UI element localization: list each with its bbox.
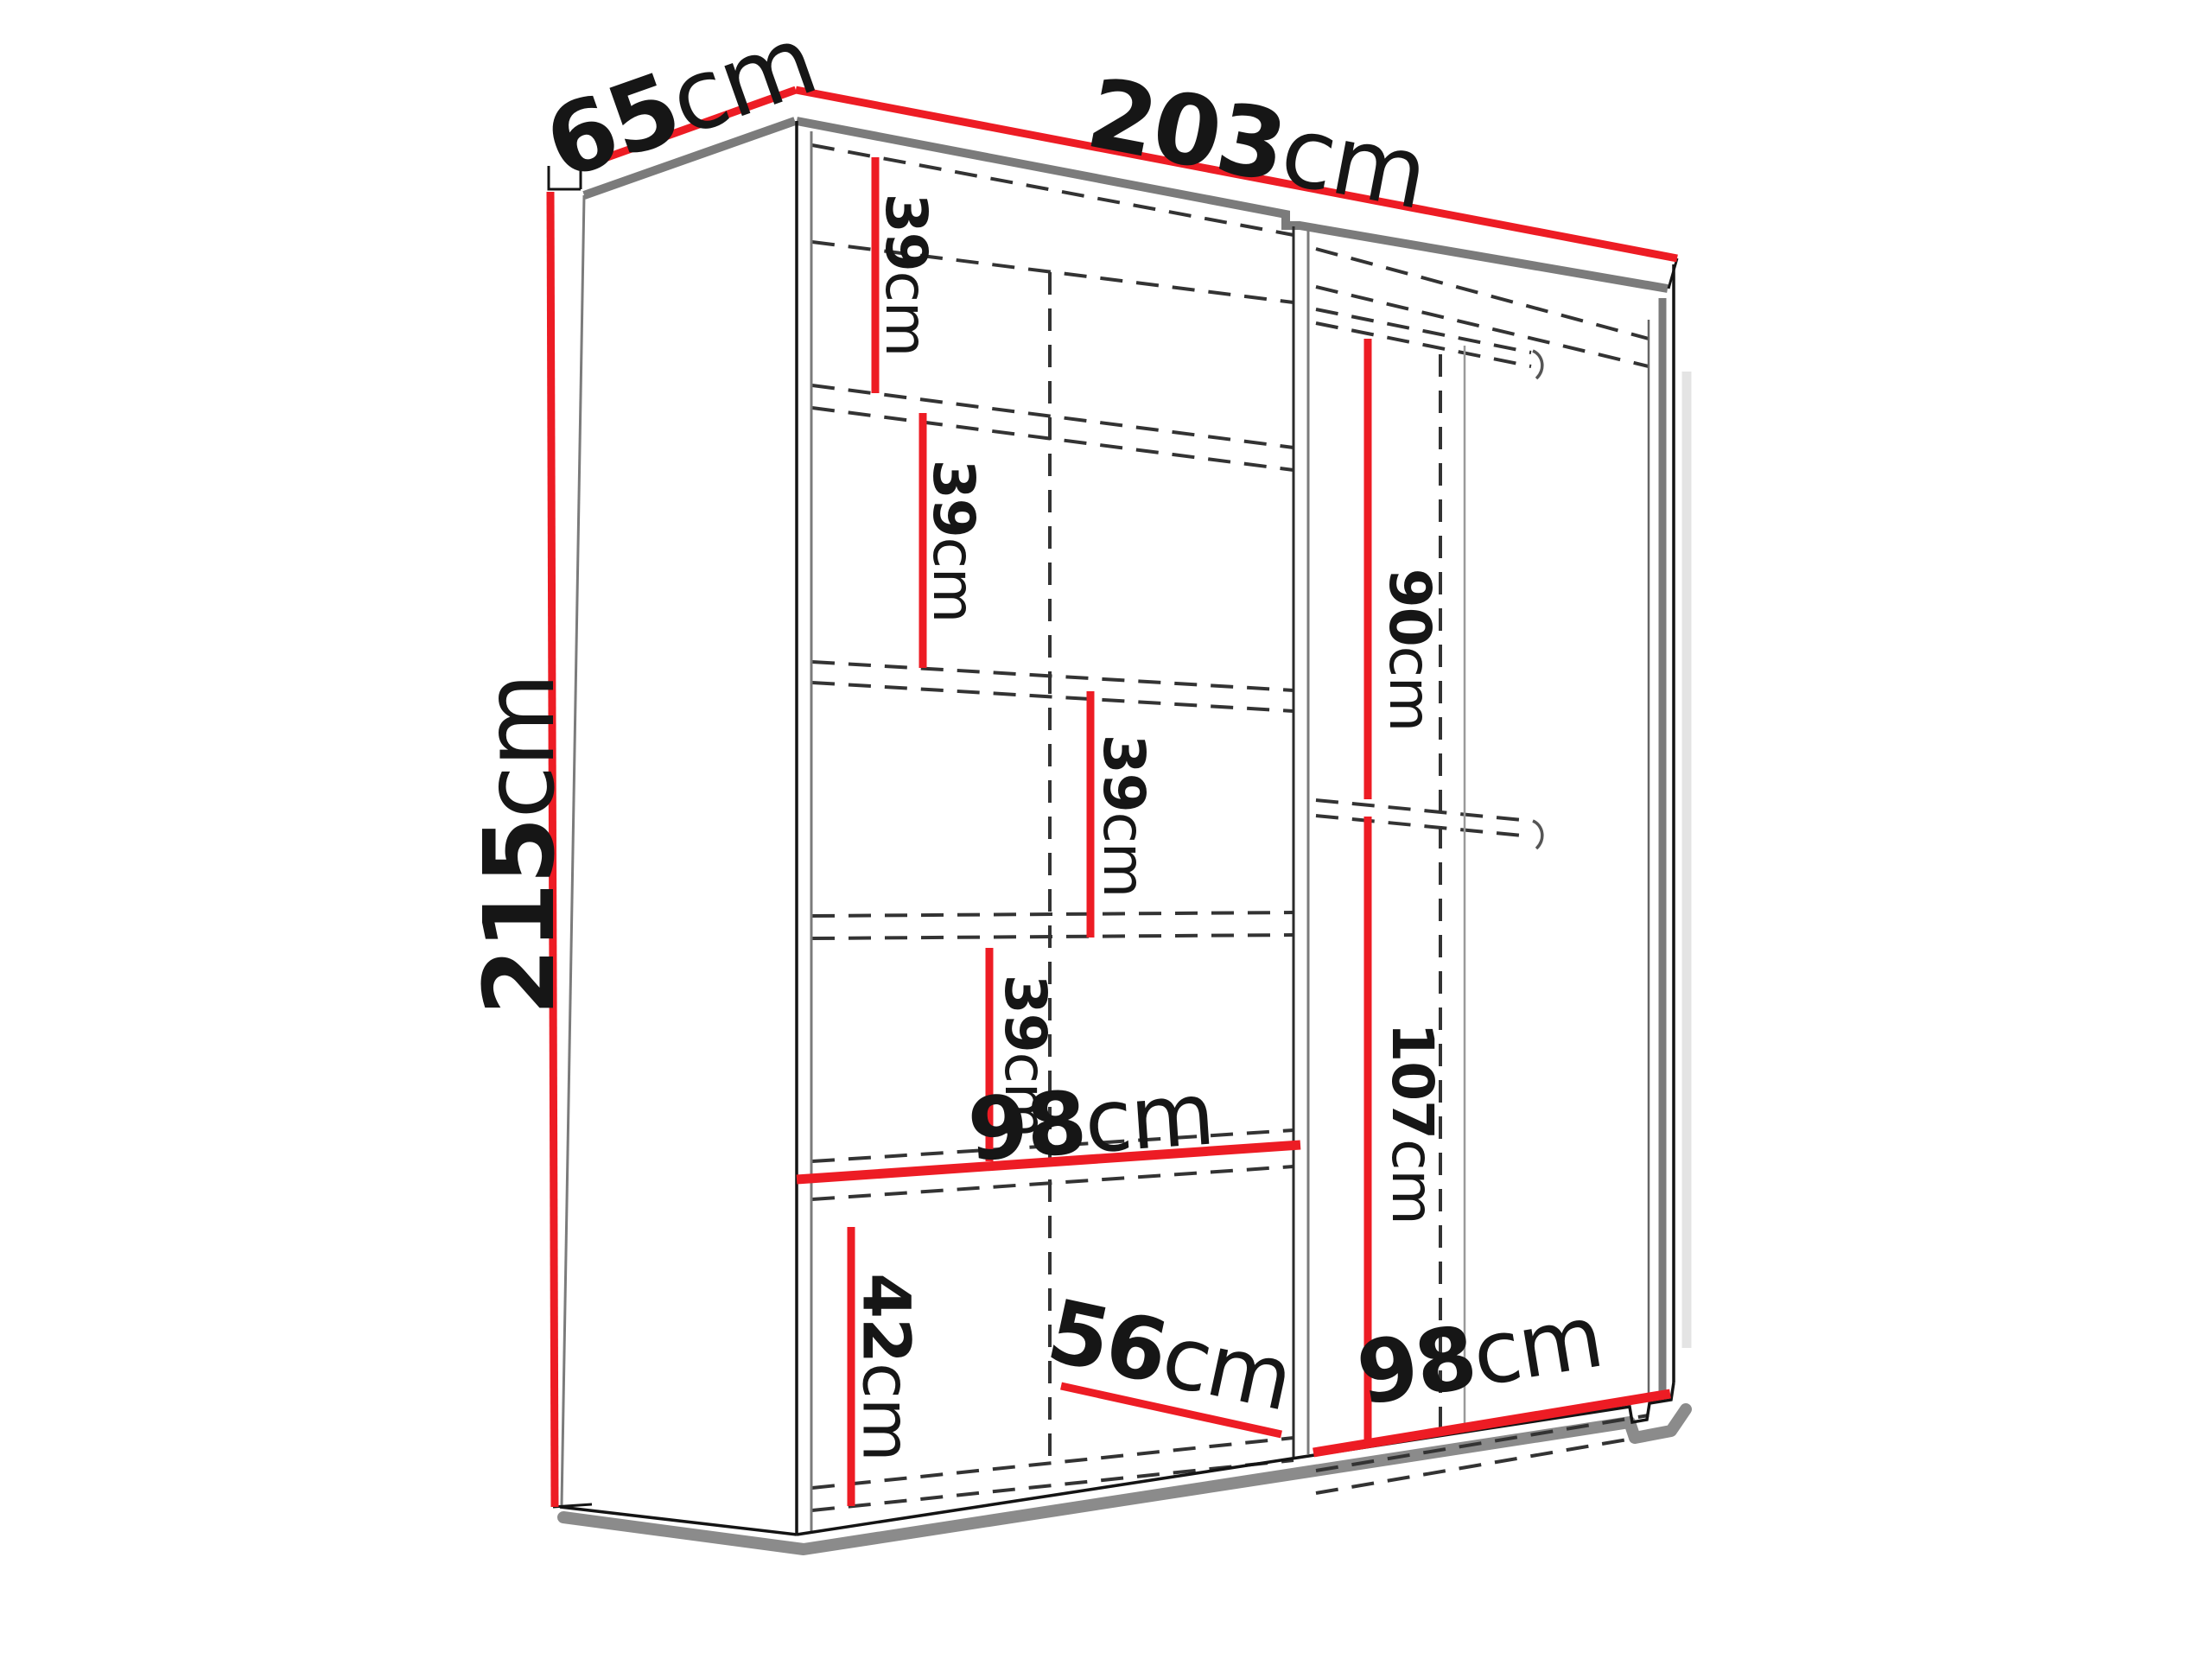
dim-label-shelf3: 39cm <box>1090 734 1157 897</box>
side-panel-face <box>560 118 797 1535</box>
dim-label-shelf1: 39cm <box>873 194 939 356</box>
dim-label-left-width: 98cm <box>965 1063 1217 1180</box>
dim-label-bottom-compartment: 42cm <box>848 1273 925 1461</box>
dim-label-hang-bottom: 107cm <box>1379 1022 1446 1224</box>
dim-label-height: 215cm <box>464 675 576 1015</box>
wardrobe-dimension-diagram: 215cm 65cm 203cm 39cm 39cm 39cm 39cm 42c… <box>0 0 2212 1659</box>
dim-label-hang-top: 90cm <box>1376 569 1443 731</box>
dim-label-shelf2: 39cm <box>920 460 987 622</box>
diagram-canvas: 215cm 65cm 203cm 39cm 39cm 39cm 39cm 42c… <box>0 0 2212 1659</box>
